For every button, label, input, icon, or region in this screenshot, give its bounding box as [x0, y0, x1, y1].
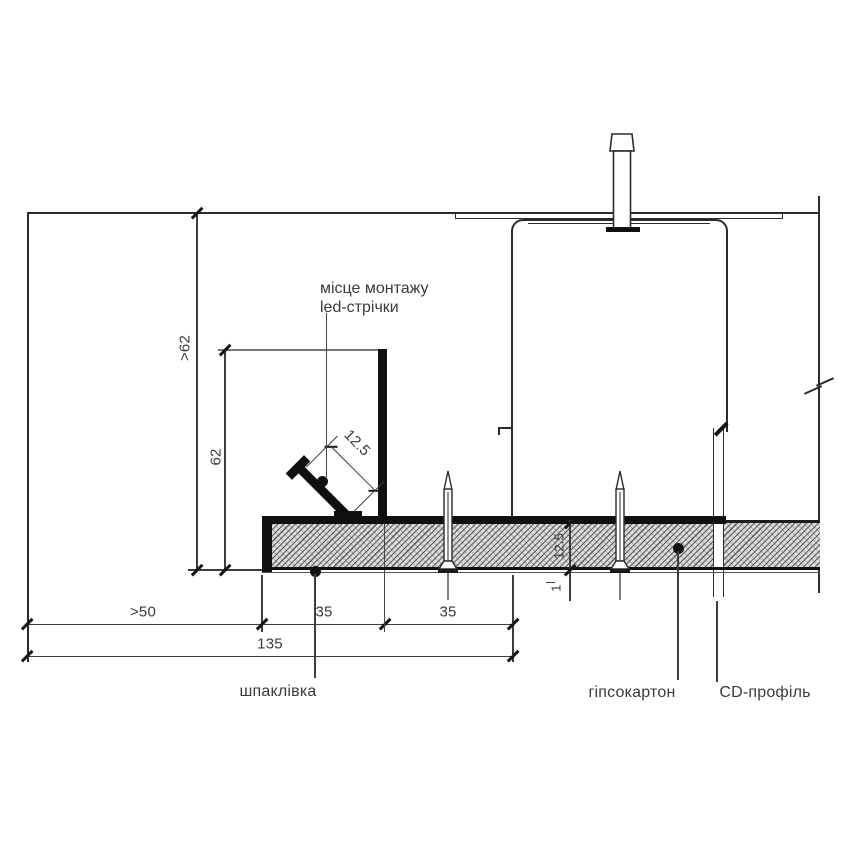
niche-left-cap	[262, 516, 272, 572]
dim-value-board-thickness: 12.5	[552, 533, 567, 559]
dim-ext-led-channel-1	[306, 436, 338, 468]
ceiling-slab-line	[27, 212, 820, 214]
dim-value-shelf-width: 35	[315, 604, 332, 621]
led-leader-line	[326, 313, 327, 477]
drywall-hatch	[262, 522, 820, 569]
dim-value-drop-total: >62	[177, 335, 194, 361]
hanger-bracket-left-extension	[511, 428, 513, 520]
label-drywall: гіпсокартон	[588, 684, 675, 702]
label-putty: шпаклівка	[239, 683, 316, 701]
drywall-top-edge	[726, 520, 820, 523]
hanger-bracket-stub-leg	[498, 427, 500, 435]
left-wall-line	[27, 212, 29, 662]
dim-ext-hanger	[512, 575, 513, 662]
dim-value-niche-total: 135	[257, 636, 283, 653]
led-annotation-line2: led-стрічки	[320, 298, 429, 317]
dim-ref-niche-top	[218, 349, 386, 350]
led-annotation-line1: місце монтажу	[320, 279, 429, 298]
dim-line-niche-height	[224, 350, 225, 570]
dim-line-board-thickness	[569, 520, 570, 601]
niche-shelf-top-edge	[262, 516, 726, 524]
dim-value-upstand-offset: 35	[439, 604, 456, 621]
led-leader-dot	[317, 476, 328, 487]
led-cove-ceiling-section-drawing: місце монтажу led-стрічки 12.5 >62 62 12…	[0, 0, 860, 860]
ceiling-recess-end-right	[782, 213, 783, 219]
hanger-bracket-stub	[498, 427, 513, 429]
drywall-screw	[606, 470, 634, 602]
hanger-bracket-box	[511, 219, 728, 432]
drywall-screw	[434, 470, 462, 602]
board-joint-line	[384, 524, 385, 632]
dim-value-niche-height: 62	[208, 448, 225, 465]
ceiling-anchor	[605, 132, 639, 230]
ceiling-recess-end-left	[455, 213, 456, 219]
led-annotation: місце монтажу led-стрічки	[320, 279, 429, 317]
dim-value-putty-layer: 1	[549, 584, 564, 591]
led-profile-foot	[334, 511, 362, 520]
cd-profile-leader-line	[716, 601, 717, 682]
dim-value-led-channel: 12.5	[340, 426, 373, 459]
niche-upstand-board	[378, 349, 387, 524]
anchor-washer-plate	[606, 227, 640, 232]
drywall-bottom-edge	[262, 567, 820, 570]
dim-line-bottom-row1	[27, 624, 513, 625]
putty-leader-line	[314, 574, 315, 678]
dim-dash-putty	[546, 582, 555, 583]
dim-line-bottom-row2	[27, 656, 513, 657]
drywall-leader-line	[677, 551, 678, 680]
dim-line-drop-total	[196, 213, 197, 570]
putty-layer-line	[262, 572, 820, 573]
label-cd-profile: CD-профіль	[719, 684, 810, 702]
dim-line-led-channel	[331, 447, 376, 492]
dim-value-wall-clearance: >50	[130, 604, 156, 621]
